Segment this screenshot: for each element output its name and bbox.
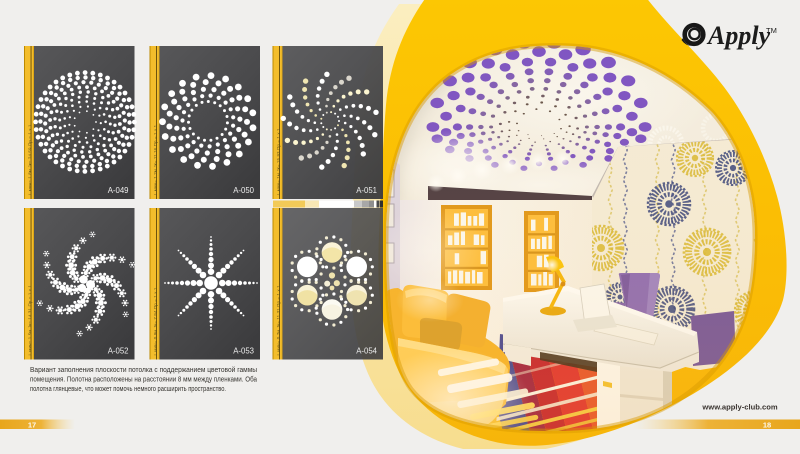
svg-text:A-052: A-052 [108,347,129,356]
svg-text:Вариант заполнения плоскости п: Вариант заполнения плоскости потолка с п… [30,365,257,374]
svg-text:17: 17 [28,420,36,429]
svg-text:полотна глянцевые, что может п: полотна глянцевые, что может помочь немн… [30,384,226,393]
svg-text:A-050: A-050 [233,186,254,195]
svg-text:L мин= 1м Jк= 15.93 Пр.= 1: L мин= 1м Jк= 15.93 Пр.= 1 х 1 [276,128,281,195]
svg-text:помещения. Полотна расположены: помещения. Полотна расположены на рассто… [30,375,258,384]
svg-text:A-054: A-054 [356,347,377,356]
svg-text:A-051: A-051 [356,186,377,195]
svg-text:L мин= 0.7м Jк= 11.31 Пр.=: L мин= 0.7м Jк= 11.31 Пр.= 1 х 1 [276,285,281,356]
svg-text:A-049: A-049 [108,186,129,195]
svg-text:L мин= 0.9м Jк= 7.94 Пр.=: L мин= 0.9м Jк= 7.94 Пр.= 1 х 1 [153,287,158,355]
svg-text:A-053: A-053 [233,347,254,356]
svg-text:Apply: Apply [706,21,771,50]
svg-text:L мин= 1.2м Jк= 11.16 Пр.=: L мин= 1.2м Jк= 11.16 Пр.= 1 х 1 [153,124,158,195]
svg-text:L мин= 1.5м Jк= 14.31 Пр.=: L мин= 1.5м Jк= 14.31 Пр.= 1 х 1 [27,285,32,356]
svg-text:TM: TM [766,26,777,35]
svg-text:www.apply-club.com: www.apply-club.com [701,403,777,412]
svg-text:18: 18 [763,420,771,429]
svg-text:L мин= 1.8м Jк= 24.59 Пр.=: L мин= 1.8м Jк= 24.59 Пр.= 1 х 1 [27,124,32,195]
